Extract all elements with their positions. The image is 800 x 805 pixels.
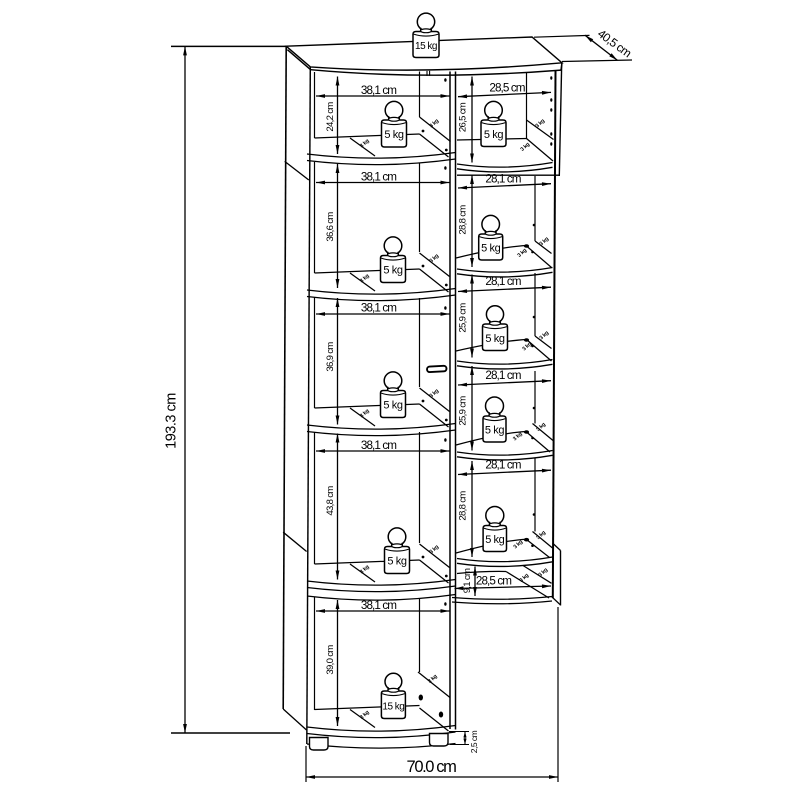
svg-text:5 kg: 5 kg	[383, 400, 402, 412]
svg-text:5 kg: 5 kg	[387, 556, 406, 568]
svg-text:38,1 cm: 38,1 cm	[361, 84, 396, 97]
svg-text:5 kg: 5 kg	[485, 425, 504, 437]
svg-text:38,1 cm: 38,1 cm	[361, 171, 396, 184]
svg-text:5 kg: 5 kg	[481, 243, 500, 255]
svg-text:25,9 cm: 25,9 cm	[458, 396, 469, 426]
svg-text:39,0 cm: 39,0 cm	[325, 645, 336, 675]
svg-text:28,1 cm: 28,1 cm	[485, 369, 520, 382]
svg-text:5 kg: 5 kg	[383, 265, 402, 277]
svg-text:24,2 cm: 24,2 cm	[325, 102, 336, 132]
svg-text:5 kg: 5 kg	[485, 333, 504, 345]
svg-text:43,8 cm: 43,8 cm	[325, 486, 336, 516]
svg-text:26,5 cm: 26,5 cm	[458, 102, 469, 132]
svg-text:15 kg: 15 kg	[382, 701, 404, 712]
svg-text:5 kg: 5 kg	[484, 129, 503, 141]
svg-text:5 kg: 5 kg	[485, 534, 504, 546]
svg-text:36,9 cm: 36,9 cm	[325, 342, 336, 372]
svg-text:38,1 cm: 38,1 cm	[361, 302, 396, 315]
svg-text:5 kg: 5 kg	[384, 129, 403, 141]
svg-text:28,8 cm: 28,8 cm	[458, 491, 469, 521]
svg-text:36,6 cm: 36,6 cm	[325, 212, 336, 242]
svg-text:38,1 cm: 38,1 cm	[361, 599, 396, 612]
svg-text:28,1 cm: 28,1 cm	[485, 173, 520, 186]
svg-text:15 kg: 15 kg	[415, 41, 437, 52]
svg-text:25,9 cm: 25,9 cm	[458, 303, 469, 333]
svg-text:38,1 cm: 38,1 cm	[361, 439, 396, 452]
svg-text:193.3 cm: 193.3 cm	[164, 393, 180, 449]
svg-text:28,5 cm: 28,5 cm	[489, 82, 524, 95]
svg-text:28,5 cm: 28,5 cm	[476, 575, 511, 588]
svg-text:2,5 cm: 2,5 cm	[469, 730, 479, 753]
svg-text:70.0 cm: 70.0 cm	[407, 758, 457, 776]
svg-text:28,8 cm: 28,8 cm	[458, 205, 469, 235]
